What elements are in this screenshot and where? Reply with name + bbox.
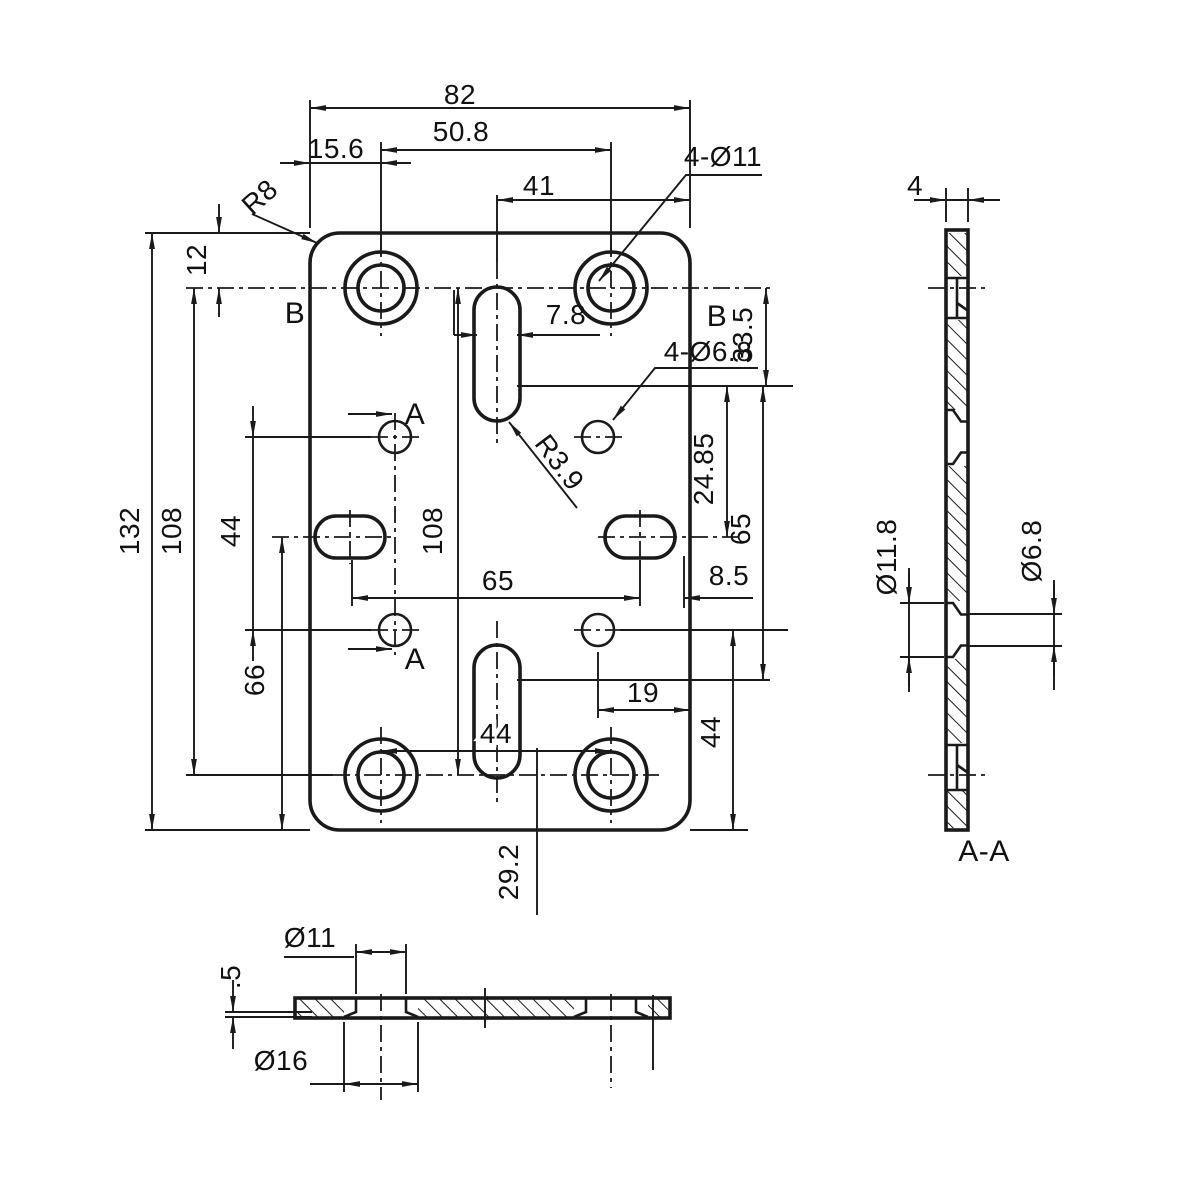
hatching (946, 233, 968, 828)
dim-d16: Ø16 (254, 1045, 308, 1076)
dim-0-5: .5 (215, 965, 246, 989)
label-4xd6-8: 4-Ø6.8 (664, 336, 753, 367)
dim-12: 12 (181, 244, 212, 276)
dim-d6-8: Ø6.8 (1016, 520, 1047, 583)
paper (0, 0, 1200, 1200)
dim-66: 66 (239, 664, 270, 696)
label-b-right: B (707, 300, 728, 333)
technical-drawing: 82 50.8 15.6 41 4-Ø11 R8 12 B B 33.5 7.8… (0, 0, 1200, 1200)
dim-d11: Ø11 (284, 922, 336, 953)
label-4xd11: 4-Ø11 (684, 141, 762, 172)
dim-19: 19 (627, 677, 659, 708)
dim-41: 41 (523, 170, 555, 201)
dim-15-6: 15.6 (308, 133, 365, 164)
dim-50-8: 50.8 (433, 116, 490, 147)
dim-65-vert: 65 (725, 513, 756, 545)
label-a-top: A (405, 398, 426, 431)
dim-8-5: 8.5 (709, 560, 749, 591)
label-b-left: B (285, 297, 306, 330)
dim-44-bottom: 44 (480, 718, 512, 749)
dim-82: 82 (444, 79, 476, 110)
dim-65-horiz: 65 (482, 565, 514, 596)
dim-108-left: 108 (156, 507, 187, 555)
dim-44-left: 44 (215, 515, 246, 547)
dim-24-85: 24.85 (688, 433, 719, 506)
dim-4: 4 (907, 170, 923, 201)
label-a-bottom: A (405, 643, 426, 676)
dim-29-2: 29.2 (493, 844, 524, 901)
label-section-aa: A-A (958, 835, 1010, 868)
dim-132: 132 (114, 507, 145, 555)
dim-108-mid: 108 (417, 507, 448, 555)
dim-44-right: 44 (695, 716, 726, 748)
dim-7-8: 7.8 (546, 299, 586, 330)
dim-d11-8: Ø11.8 (871, 519, 902, 596)
drawing-sheet: 82 50.8 15.6 41 4-Ø11 R8 12 B B 33.5 7.8… (0, 0, 1200, 1200)
